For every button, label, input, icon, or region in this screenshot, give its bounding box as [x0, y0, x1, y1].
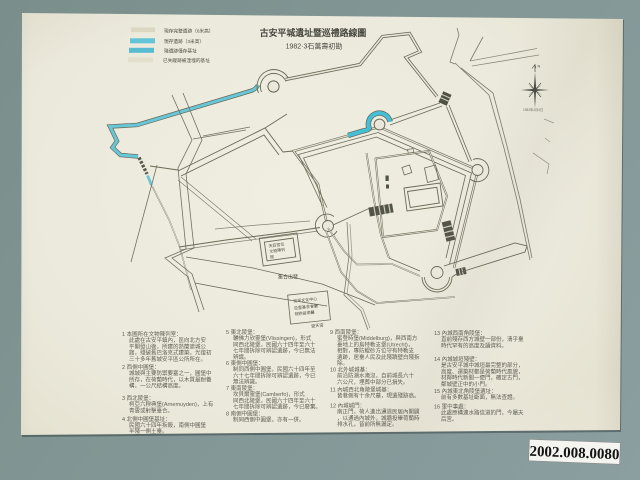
svg-text:15 內城東北角陵堡遺址：: 15 內城東北角陵堡遺址： [434, 387, 497, 395]
svg-text:此處原構連水路信道的門，今屬天: 此處原構連水路信道的門，今屬天 [441, 409, 524, 417]
svg-text:同西北陵堡，民國六十四年至六十: 同西北陵堡，民國六十四年至六十 [233, 340, 316, 348]
svg-text:時代罕有的高度及讀資料。: 時代罕有的高度及讀資料。 [441, 341, 507, 349]
svg-text:12 內城城門：: 12 內城城門： [330, 402, 365, 410]
svg-text:制同西側中圓堡，亦有一併。: 制同西側中圓堡，亦有一併。 [233, 416, 305, 424]
svg-text:4 北側中圓堡基址：: 4 北側中圓堡基址： [122, 415, 171, 423]
svg-text:相對，專防鯤砂方位守有特勒支: 相對，專防鯤砂方位守有特勒支 [337, 347, 415, 355]
svg-text:是古安平城中城垣最完整的部分，: 是古安平城中城垣最完整的部分， [441, 361, 524, 369]
svg-text:輔佛力欣靈堡(Vlissingen)，形式: 輔佛力欣靈堡(Vlissingen)，形式 [233, 334, 312, 342]
svg-text:臺地上的烏特勒支堡(Utrecht)，: 臺地上的烏特勒支堡(Utrecht)， [337, 340, 413, 348]
svg-text:現存遺跡（3米高）: 現存遺跡（3米高） [164, 38, 204, 45]
svg-text:平開發山後，所建的熱蘭遮城公: 平開發山後，所建的熱蘭遮城公 [129, 342, 207, 350]
svg-text:同西北陵堡，民國六十四年至六十: 同西北陵堡，民國六十四年至六十 [233, 396, 316, 404]
svg-text:材鄰時代新關一便門，確定古門，: 材鄰時代新關一便門，確定古門， [441, 374, 524, 382]
svg-text:古安平城遺址暨巡禮路線圖: 古安平城遺址暨巡禮路線圖 [260, 27, 367, 38]
svg-text:3 西北陵堡：: 3 西北陵堡： [122, 394, 154, 402]
svg-text:辨識。: 辨識。 [233, 353, 250, 361]
svg-text:蜜登時堡(Middelburg)，與西南方: 蜜登時堡(Middelburg)，與西南方 [337, 334, 418, 342]
svg-text:8 南側中圓堡：: 8 南側中圓堡： [226, 410, 264, 418]
svg-text:高度、運築材都是荷蘭時代風貌，: 高度、運築材都是荷蘭時代風貌， [441, 367, 524, 375]
svg-text:所存，在荷蘭時代，以木質最耐養: 所存，在荷蘭時代，以木質最耐養 [129, 375, 212, 383]
svg-text:已失蹤跡被湮埋的基址: 已失蹤跡被湮埋的基址 [163, 57, 210, 64]
svg-text:11 內城西北角陵堡城基：: 11 內城西北角陵堡城基： [330, 386, 392, 394]
svg-text:2 西側中圓堡：: 2 西側中圓堡： [122, 363, 160, 371]
svg-text:亞壹基金會醫: 亞壹基金會醫 [294, 302, 318, 310]
svg-text:館: 館 [270, 253, 275, 259]
svg-text:1982·3石萬壽初勘: 1982·3石萬壽初勘 [286, 42, 343, 51]
svg-text:此處在古安平鎮內，區向北方安: 此處在古安平鎮內，區向北方安 [129, 336, 207, 344]
svg-text:坎貝爾靈堡(Camberfo)，形式: 坎貝爾靈堡(Camberfo)，形式 [233, 390, 305, 398]
svg-text:10 北外城城基：: 10 北外城城基： [330, 366, 371, 374]
svg-text:館，殘破舊巴洛克式建築，光復初: 館，殘破舊巴洛克式建築，光復初 [129, 349, 212, 357]
svg-text:南正門，荷人進出通道民居內開闢: 南正門，荷人進出通道民居內開闢 [337, 408, 420, 416]
svg-text:直前殘存西方城壁一部份，淸乎臺: 直前殘存西方城壁一部份，淸乎臺 [441, 335, 524, 343]
svg-text:，以通過內城外，城牆投畢荷蘭時: ，以通過內城外，城牆投畢荷蘭時 [337, 414, 420, 422]
svg-text:16 軍中事處：: 16 軍中事處： [434, 403, 469, 411]
svg-text:城城與主要防禦要塞之一，圓堡中: 城城與主要防禦要塞之一，圓堡中 [129, 369, 212, 377]
svg-text:民國六十四年拆毀，南側中圓堡: 民國六十四年拆毀，南側中圓堡 [129, 421, 207, 429]
svg-text:六公尺，埋葬中部分已損失。: 六公尺，埋葬中部分已損失。 [337, 378, 409, 386]
svg-text:除。: 除。 [337, 359, 348, 367]
svg-text:制同西側中圓堡，民國六十四年至: 制同西側中圓堡，民國六十四年至 [233, 365, 316, 373]
svg-text:9 西南陵堡：: 9 西南陵堡： [330, 328, 362, 336]
svg-text:半殘一側土臺。: 半殘一側土臺。 [129, 427, 168, 435]
svg-text:集合出發: 集合出發 [278, 274, 298, 281]
svg-text:七年間拆除可辨認遺跡，今已無法: 七年間拆除可辨認遺跡，今已無法 [233, 347, 316, 355]
svg-text:前沿防潮水淹沒，自前城長六十: 前沿防潮水淹沒，自前城長六十 [337, 372, 415, 380]
svg-text:13 內城西南角陵堡：: 13 內城西南角陵堡： [434, 329, 486, 337]
svg-text:14 內城城垣殘壁：: 14 內城城垣殘壁： [434, 355, 480, 363]
svg-text:三十多年舊城安平區公所所在。: 三十多年舊城安平區公所所在。 [129, 355, 206, 363]
svg-text:柯亞六穆典堡(Arnemuyden)，上有: 柯亞六穆典堡(Arnemuyden)，上有 [129, 400, 214, 408]
svg-text:無法辨識。: 無法辨識。 [233, 378, 261, 386]
svg-text:6 東側中圓堡：: 6 東側中圓堡： [226, 359, 264, 367]
svg-text:后宮。: 后宮。 [441, 415, 458, 423]
svg-text:7 東南陵堡：: 7 東南陵堡： [226, 384, 258, 392]
svg-text:安平文化中心: 安平文化中心 [293, 295, 317, 303]
svg-text:前有多數基址斷面，無法查證。: 前有多數基址斷面，無法查證。 [441, 393, 518, 401]
svg-text:六十七年間拆除可辨認遺跡，今已: 六十七年間拆除可辨認遺跡，今已 [233, 371, 316, 379]
svg-text:受天宮: 受天宮 [311, 321, 324, 329]
svg-text:1982年4月4日: 1982年4月4日 [523, 107, 543, 112]
svg-text:構，一公尺結構高度。: 構，一公尺結構高度。 [129, 382, 184, 390]
svg-text:5 東北陵堡：: 5 東北陵堡： [226, 328, 258, 336]
svg-text:現存完整遺跡（6米高）: 現存完整遺跡（6米高） [164, 27, 213, 34]
svg-text:殘遺跡僅存基址: 殘遺跡僅存基址 [164, 48, 197, 55]
svg-text:鄰城壁正中的小門。: 鄰城壁正中的小門。 [441, 380, 491, 388]
svg-text:青雲或射擊臺合。: 青雲或射擊臺合。 [129, 406, 173, 414]
svg-text:七年間拆除可辨認遺跡，今已廢棄。: 七年間拆除可辨認遺跡，今已廢棄。 [233, 403, 321, 411]
svg-text:1 本圖所在文物陳列室：: 1 本圖所在文物陳列室： [122, 330, 182, 338]
svg-text:N: N [538, 65, 541, 69]
svg-text:皆巷側有十余尺墓，現遺殘跡高。: 皆巷側有十余尺墓，現遺殘跡高。 [337, 392, 420, 400]
svg-text:遺跡，居臺人民及此殘蹟壁白殘拆: 遺跡，居臺人民及此殘蹟壁白殘拆 [337, 353, 420, 361]
svg-text:排水孔，皆前所無漏定。: 排水孔，皆前所無漏定。 [337, 420, 398, 428]
